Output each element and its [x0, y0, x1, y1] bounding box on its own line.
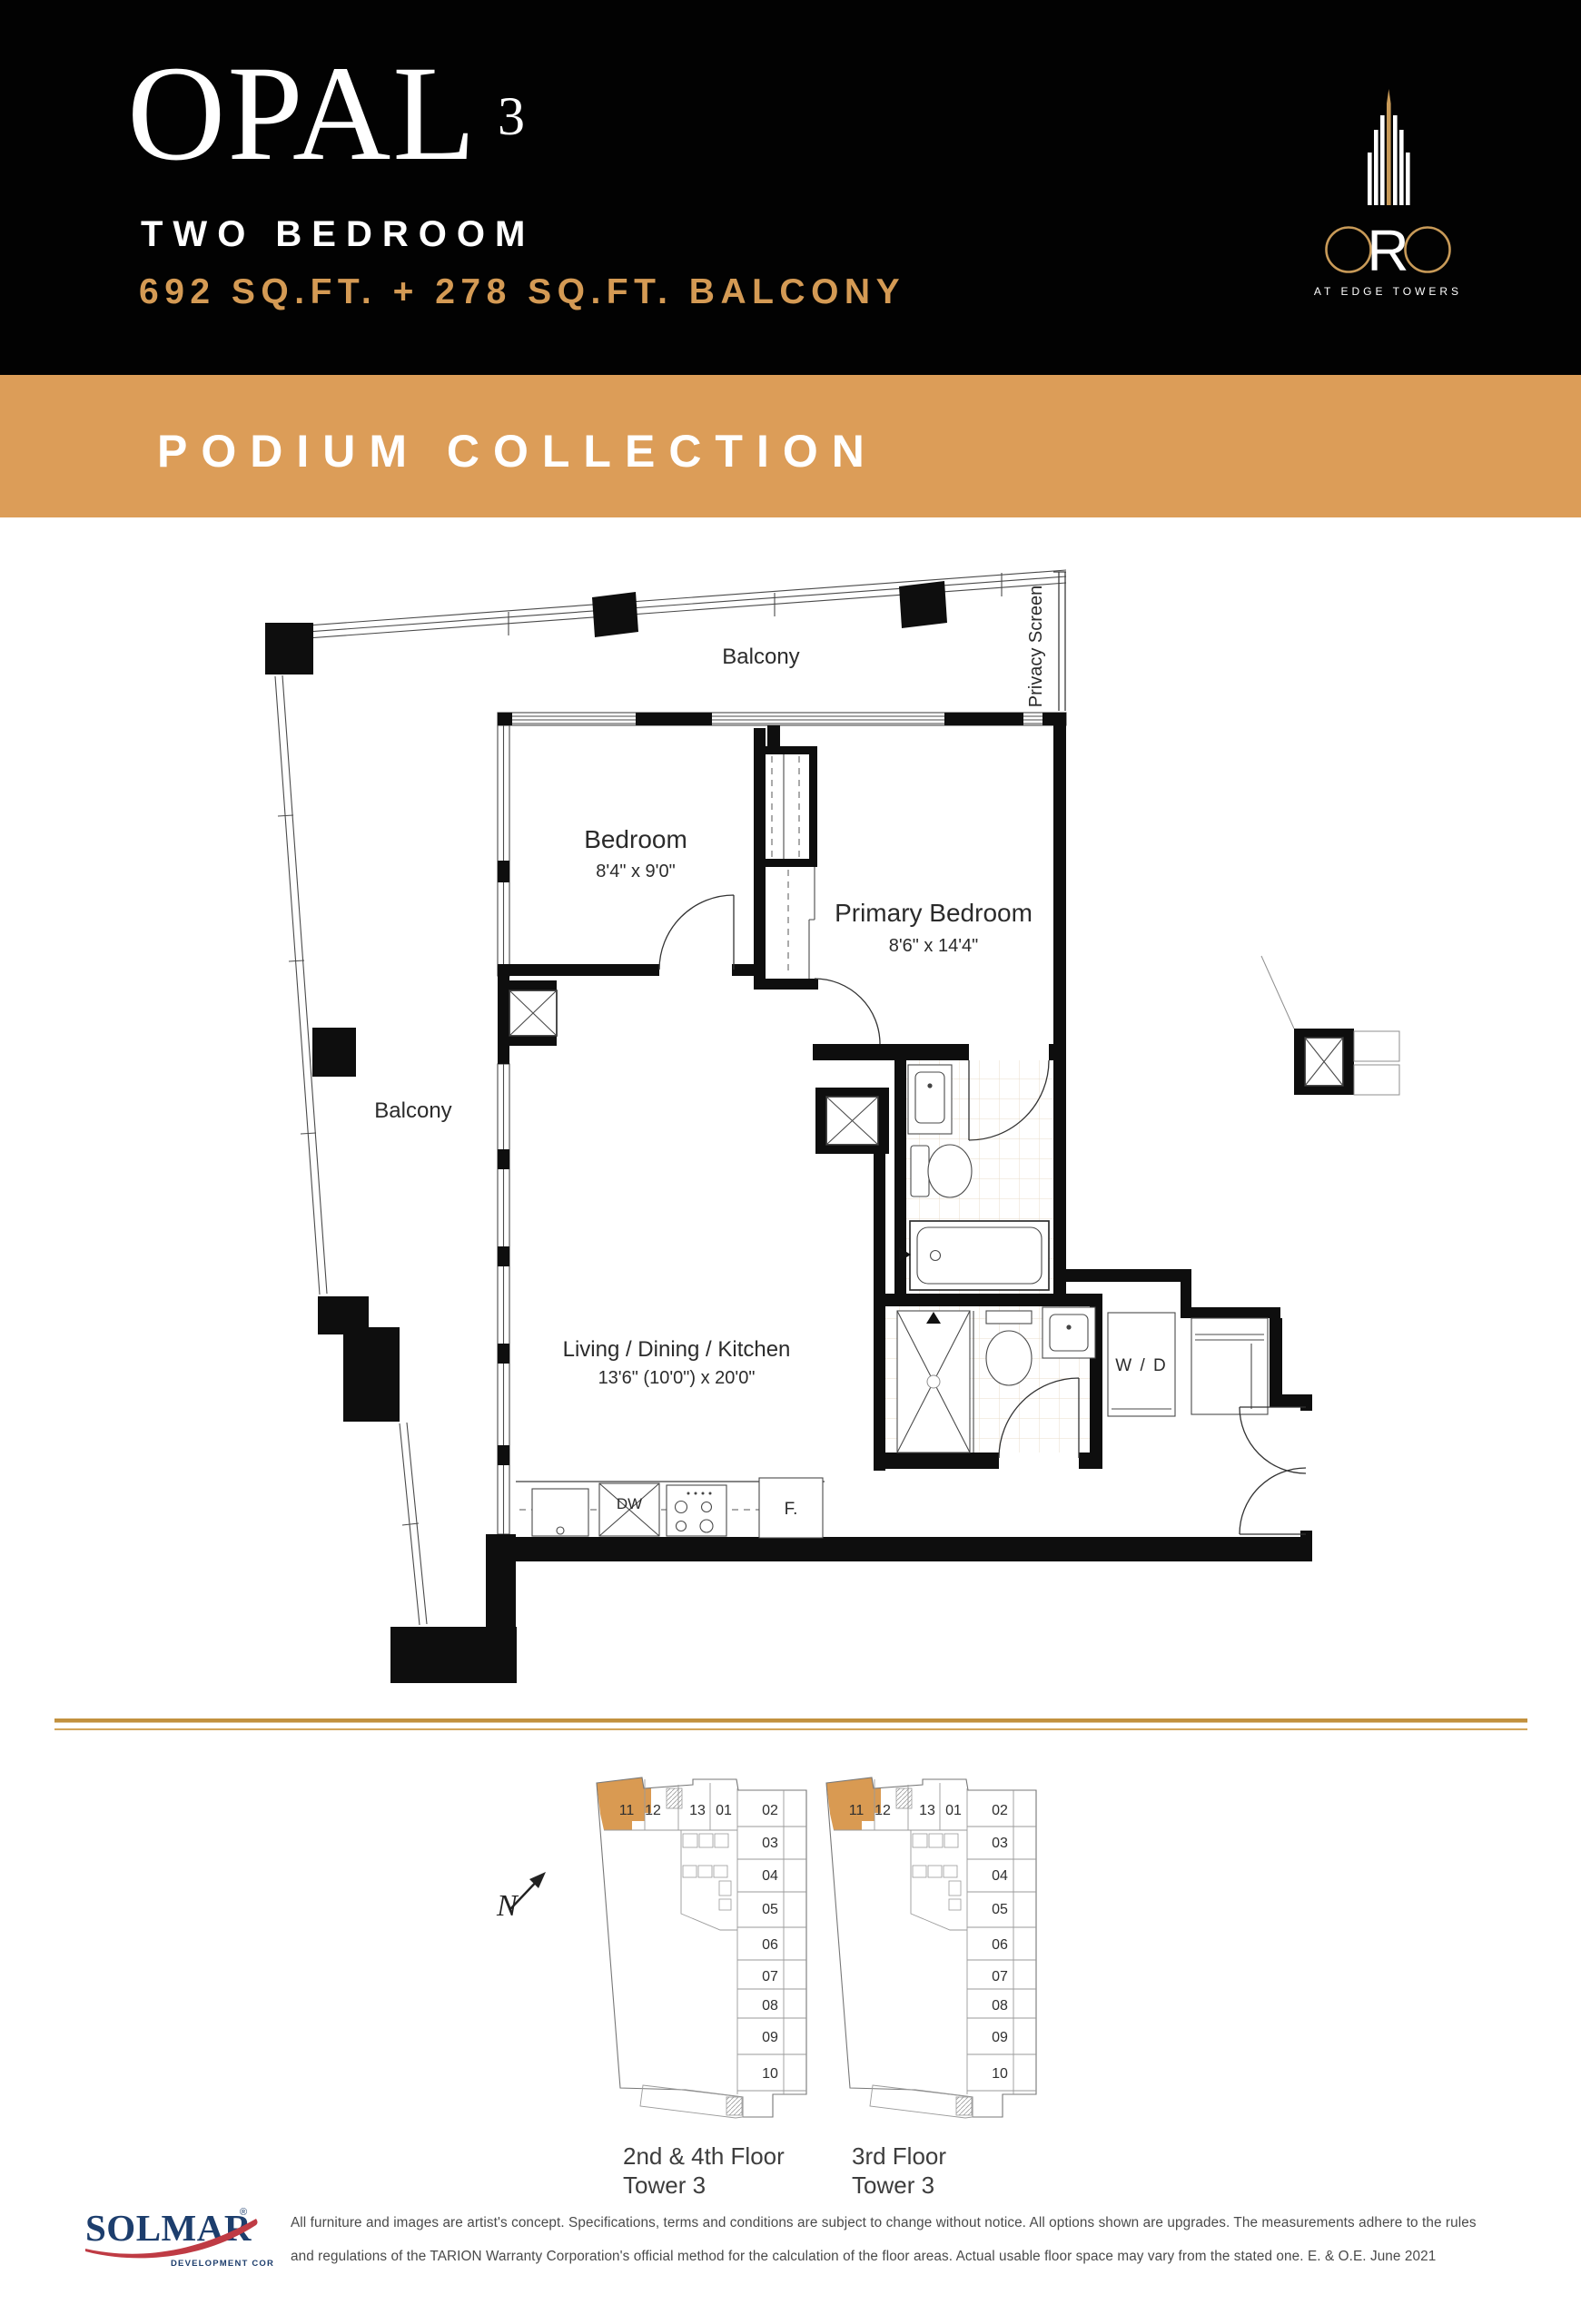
key-plate-caption: 2nd & 4th Floor	[623, 2142, 785, 2170]
dishwasher-label: DW	[617, 1495, 642, 1512]
svg-text:12: 12	[874, 1803, 891, 1818]
solmar-logo: SOLMAR ® DEVELOPMENT CORP.	[84, 2199, 274, 2275]
washer-dryer-label: W / D	[1115, 1356, 1168, 1375]
kitchen-fixtures	[516, 1478, 825, 1538]
balcony-top-label: Balcony	[722, 645, 799, 669]
disclaimer-line-1: All furniture and images are artist's co…	[291, 2206, 1526, 2240]
floorplan-sheet: { "header": { "title": "OPAL", "title_su…	[0, 0, 1581, 2324]
svg-text:09: 09	[992, 2030, 1008, 2045]
privacy-screen-label: Privacy Screen	[1026, 586, 1046, 708]
svg-text:02: 02	[992, 1803, 1008, 1818]
key-plate: 11121301020304050607080910	[826, 1777, 1036, 2118]
disclaimer-line-2: and regulations of the TARION Warranty C…	[291, 2240, 1526, 2273]
svg-text:10: 10	[992, 2066, 1008, 2082]
svg-text:01: 01	[945, 1803, 962, 1818]
svg-text:03: 03	[992, 1836, 1008, 1851]
key-plate-caption: Tower 3	[852, 2171, 934, 2199]
svg-text:07: 07	[762, 1969, 778, 1984]
solmar-logo-text: SOLMAR	[85, 2207, 252, 2249]
key-plate-caption: Tower 3	[623, 2171, 706, 2199]
svg-text:11: 11	[619, 1803, 635, 1818]
privacy-screen-line	[1053, 572, 1066, 711]
svg-text:08: 08	[762, 1998, 778, 2014]
balcony-columns	[265, 581, 947, 1422]
living-dining-kitchen-dims: 13'6" (10'0") x 20'0"	[598, 1368, 756, 1388]
living-dining-kitchen-label: Living / Dining / Kitchen	[563, 1337, 791, 1362]
svg-text:08: 08	[992, 1998, 1008, 2014]
primary-bedroom-label: Primary Bedroom	[835, 899, 1033, 927]
svg-text:03: 03	[762, 1836, 778, 1851]
balcony-left-label: Balcony	[374, 1098, 451, 1123]
north-arrow-icon: N	[496, 1872, 546, 1923]
solmar-registered-mark: ®	[240, 2207, 247, 2218]
svg-text:05: 05	[992, 1902, 1008, 1917]
svg-text:01: 01	[716, 1803, 732, 1818]
gold-divider	[54, 1718, 1527, 1730]
svg-text:04: 04	[992, 1868, 1008, 1884]
svg-text:13: 13	[919, 1803, 935, 1818]
north-label: N	[496, 1889, 519, 1923]
unit-walls	[390, 713, 1312, 1683]
primary-bedroom-dims: 8'6" x 14'4"	[889, 936, 979, 956]
svg-text:07: 07	[992, 1969, 1008, 1984]
svg-text:05: 05	[762, 1902, 778, 1917]
svg-text:11: 11	[849, 1803, 865, 1818]
fridge-label: F.	[785, 1500, 798, 1519]
svg-text:09: 09	[762, 2030, 778, 2045]
disclaimer: All furniture and images are artist's co…	[291, 2206, 1526, 2273]
svg-text:06: 06	[992, 1937, 1008, 1953]
svg-text:10: 10	[762, 2066, 778, 2082]
bedroom-label: Bedroom	[584, 825, 687, 853]
floor-plan-drawing: Balcony Balcony Bedroom 8'4" x 9'0" Prim…	[0, 0, 1581, 2324]
key-plate: 11121301020304050607080910	[597, 1777, 806, 2118]
key-plate-caption: 3rd Floor	[852, 2142, 946, 2170]
bedroom-dims: 8'4" x 9'0"	[596, 862, 675, 881]
svg-text:12: 12	[645, 1803, 661, 1818]
svg-text:04: 04	[762, 1868, 778, 1884]
svg-text:06: 06	[762, 1937, 778, 1953]
solmar-sub-text: DEVELOPMENT CORP.	[171, 2259, 274, 2269]
svg-text:13: 13	[689, 1803, 706, 1818]
svg-text:02: 02	[762, 1803, 778, 1818]
